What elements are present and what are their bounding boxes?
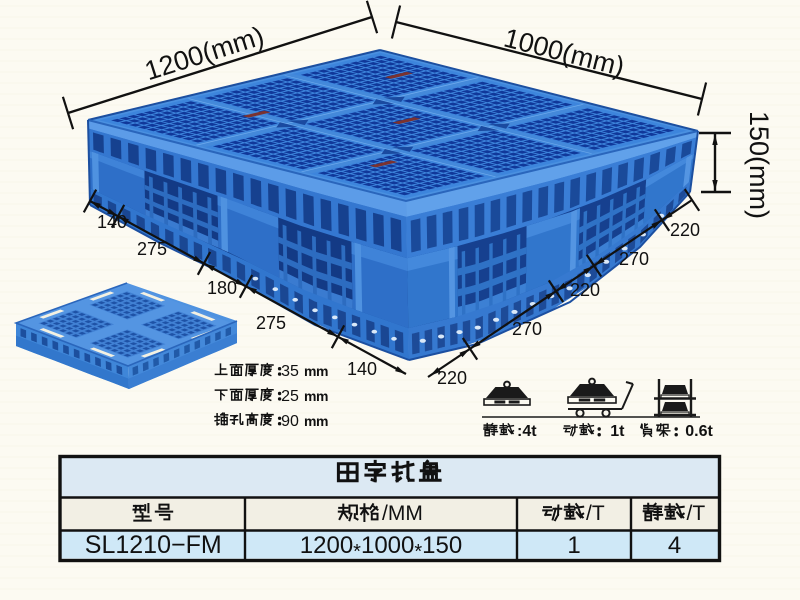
- svg-text:mm: mm: [304, 363, 328, 379]
- svg-text:35: 35: [281, 363, 299, 380]
- svg-text:275: 275: [256, 313, 286, 333]
- svg-text:/T: /T: [687, 502, 706, 525]
- svg-text:220: 220: [570, 280, 600, 300]
- svg-text:SL1210−FM: SL1210−FM: [85, 531, 222, 559]
- svg-text::4t: :4t: [517, 423, 537, 440]
- svg-text:25: 25: [281, 388, 299, 405]
- svg-text:180: 180: [207, 278, 237, 298]
- svg-text:mm: mm: [304, 388, 328, 404]
- svg-text:1t: 1t: [610, 423, 625, 440]
- svg-text:90: 90: [281, 413, 299, 430]
- svg-text:270: 270: [619, 249, 649, 269]
- svg-text:275: 275: [137, 239, 167, 259]
- svg-text:4: 4: [668, 532, 681, 559]
- svg-text:0.6t: 0.6t: [685, 423, 713, 440]
- svg-text:150(mm): 150(mm): [744, 111, 774, 219]
- svg-text:1200*1000*150: 1200*1000*150: [300, 532, 462, 563]
- svg-text:140: 140: [347, 359, 377, 379]
- svg-text:/T: /T: [586, 502, 605, 525]
- svg-text:1: 1: [567, 532, 580, 559]
- svg-text:140: 140: [97, 212, 127, 232]
- svg-text:/MM: /MM: [382, 502, 423, 525]
- svg-text:270: 270: [512, 319, 542, 339]
- svg-text:220: 220: [670, 220, 700, 240]
- svg-text:220: 220: [437, 368, 467, 388]
- svg-text:mm: mm: [304, 413, 328, 429]
